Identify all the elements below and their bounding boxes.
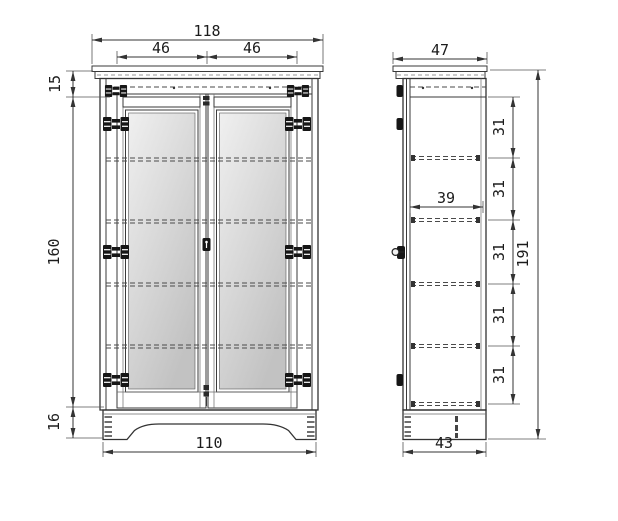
wardrobe-dimension-drawing: 118 46 46 15 160 16 110 47 39	[0, 0, 618, 521]
dim-overall-width-label: 118	[193, 22, 220, 40]
dim-plinth-width-label: 110	[195, 434, 222, 452]
screw-dot	[173, 87, 175, 89]
side-body	[403, 79, 486, 411]
hinge-icon	[285, 117, 311, 131]
dim-overall-height-label: 191	[514, 240, 532, 267]
left-door	[117, 94, 206, 408]
hinge-icon	[105, 85, 127, 97]
hinge-icon	[285, 373, 311, 387]
dim-shelf-gap-label-2: 31	[490, 180, 508, 198]
right-door	[208, 94, 297, 408]
screw-dot	[422, 87, 424, 89]
dim-shelf-gap-label-1: 31	[490, 118, 508, 136]
dim-top-depth-label: 47	[431, 41, 449, 59]
hinge-knuckle-icon	[397, 118, 404, 130]
hinge-icon	[103, 373, 129, 387]
dim-shelf-gap-label-3: 31	[490, 243, 508, 261]
dim-left-door-label: 46	[152, 39, 170, 57]
right-door-top-panel	[214, 97, 291, 107]
dim-plinth-height-label: 16	[45, 413, 63, 431]
front-view	[92, 66, 323, 440]
hinge-icon	[287, 85, 309, 97]
lock-icon	[203, 238, 211, 251]
side-view	[392, 66, 487, 440]
hinge-icon	[285, 245, 311, 259]
hinge-icon	[103, 245, 129, 259]
side-cornice-top	[393, 66, 487, 72]
hinge-icon	[103, 117, 129, 131]
dim-base-depth-label: 43	[435, 434, 453, 452]
dim-right-door-label: 46	[243, 39, 261, 57]
left-door-top-panel	[123, 97, 200, 107]
dim-carcass-height-label: 160	[45, 238, 63, 265]
dim-shelf-gap-label-5: 31	[490, 366, 508, 384]
dim-shelf-gap-label-4: 31	[490, 306, 508, 324]
screw-dot	[269, 87, 271, 89]
hinge-knuckle-icon	[397, 85, 404, 97]
screw-dot	[471, 87, 473, 89]
technical-drawing-canvas: 118 46 46 15 160 16 110 47 39	[0, 0, 618, 521]
dim-cornice-height-label: 15	[46, 75, 64, 93]
cornice-top	[92, 66, 323, 72]
hinge-knuckle-icon	[397, 374, 404, 386]
dim-interior-depth-label: 39	[437, 189, 455, 207]
